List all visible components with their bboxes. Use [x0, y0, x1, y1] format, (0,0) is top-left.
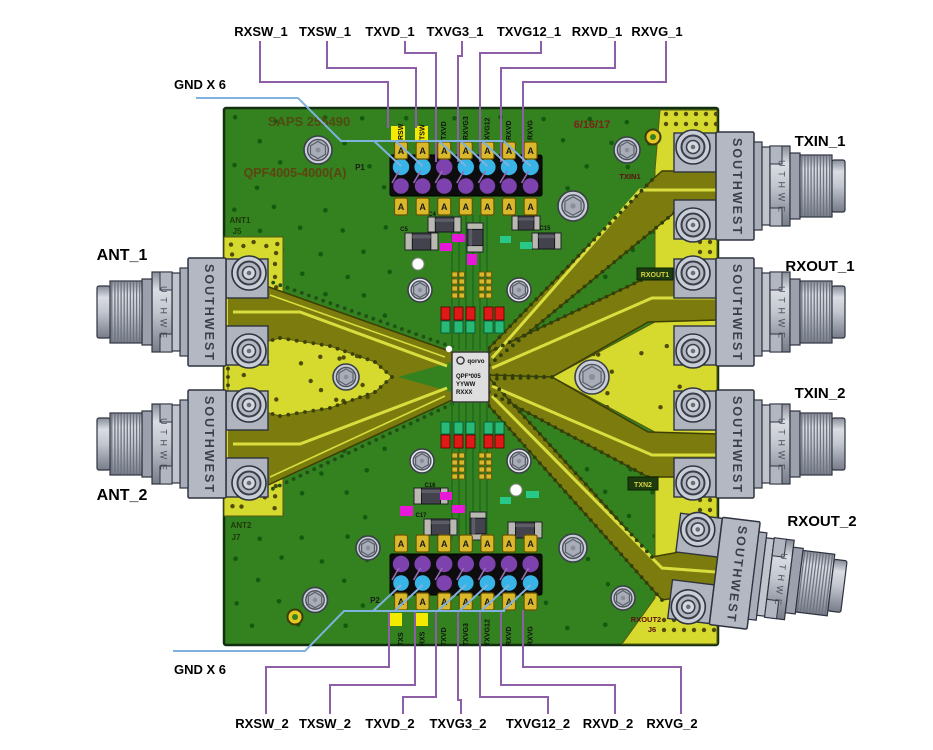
svg-text:RXVG_1: RXVG_1	[631, 24, 682, 39]
svg-text:YYWW: YYWW	[456, 382, 476, 388]
svg-text:RXVD_1: RXVD_1	[572, 24, 623, 39]
svg-text:TXVG12_1: TXVG12_1	[497, 24, 561, 39]
svg-text:ANT1: ANT1	[230, 216, 251, 225]
svg-text:TXVG3: TXVG3	[463, 623, 470, 646]
svg-text:RXS: RXS	[420, 631, 427, 646]
svg-text:A: A	[506, 539, 513, 549]
svg-text:TXVG3_2: TXVG3_2	[429, 716, 486, 731]
svg-text:RXOUT_1: RXOUT_1	[785, 258, 854, 275]
svg-text:QPF*005: QPF*005	[456, 374, 481, 380]
svg-text:SOUTHWEST: SOUTHWEST	[730, 138, 744, 234]
svg-text:A: A	[419, 146, 426, 156]
svg-text:GND X 6: GND X 6	[174, 77, 226, 92]
svg-text:J6: J6	[648, 625, 656, 634]
svg-text:SOUTHWEST: SOUTHWEST	[730, 264, 744, 360]
svg-text:TXVD: TXVD	[441, 121, 448, 140]
svg-text:A: A	[398, 539, 405, 549]
svg-text:ANT_2: ANT_2	[97, 487, 148, 504]
svg-text:RXXX: RXXX	[456, 390, 472, 396]
svg-text:C16: C16	[424, 483, 436, 489]
svg-text:TXVG3_1: TXVG3_1	[426, 24, 483, 39]
svg-text:A: A	[419, 202, 426, 212]
svg-text:A: A	[441, 202, 448, 212]
svg-text:TXVG12_2: TXVG12_2	[506, 716, 570, 731]
svg-text:RXVD: RXVD	[506, 121, 513, 140]
svg-text:A: A	[398, 202, 405, 212]
svg-text:TXVG12: TXVG12	[484, 619, 491, 646]
svg-text:A: A	[527, 146, 534, 156]
svg-text:A: A	[441, 539, 448, 549]
svg-text:A: A	[527, 202, 534, 212]
svg-text:P2: P2	[370, 596, 380, 605]
svg-text:C17: C17	[415, 513, 427, 519]
svg-text:A: A	[419, 597, 426, 607]
svg-text:SOUTHWEST: SOUTHWEST	[730, 396, 744, 492]
svg-text:6/16/17: 6/16/17	[574, 119, 611, 131]
svg-text:A: A	[527, 539, 534, 549]
svg-text:SOUTHWEST: SOUTHWEST	[202, 396, 216, 492]
svg-text:A: A	[419, 539, 426, 549]
svg-text:P1: P1	[355, 163, 365, 172]
svg-text:SAPS 255490: SAPS 255490	[268, 114, 350, 129]
svg-text:RXOUT2: RXOUT2	[631, 615, 661, 624]
svg-text:RXOUT1: RXOUT1	[641, 272, 670, 279]
svg-text:RXVG3: RXVG3	[463, 116, 470, 140]
svg-text:RXVG: RXVG	[528, 626, 535, 646]
svg-text:A: A	[484, 539, 491, 549]
svg-text:TXVD_1: TXVD_1	[365, 24, 414, 39]
svg-text:TSW: TSW	[420, 124, 427, 140]
svg-text:RXVD: RXVD	[506, 627, 513, 646]
svg-text:TXSW_2: TXSW_2	[299, 716, 351, 731]
svg-text:J7: J7	[232, 533, 241, 542]
svg-text:RXVG: RXVG	[528, 120, 535, 140]
svg-text:GND X 6: GND X 6	[174, 662, 226, 677]
svg-text:TXIN_1: TXIN_1	[795, 133, 846, 150]
svg-text:TXSW_1: TXSW_1	[299, 24, 351, 39]
svg-text:TXS: TXS	[398, 632, 405, 646]
svg-text:TXVD_2: TXVD_2	[365, 716, 414, 731]
svg-text:A: A	[527, 597, 534, 607]
svg-text:ANT2: ANT2	[231, 521, 252, 530]
svg-text:RXSW_2: RXSW_2	[235, 716, 288, 731]
svg-text:ANT_1: ANT_1	[97, 247, 148, 264]
svg-text:TXIN_2: TXIN_2	[795, 385, 846, 402]
svg-text:RXVG_2: RXVG_2	[646, 716, 697, 731]
svg-text:RXOUT_2: RXOUT_2	[787, 513, 856, 530]
svg-text:J5: J5	[233, 227, 242, 236]
svg-text:A: A	[506, 202, 513, 212]
svg-text:XVG12: XVG12	[484, 117, 491, 140]
svg-text:C15: C15	[539, 226, 551, 232]
svg-text:QPF4005-4000(A): QPF4005-4000(A)	[244, 166, 347, 180]
svg-text:RXVD_2: RXVD_2	[583, 716, 634, 731]
svg-text:TXIN1: TXIN1	[619, 172, 640, 181]
svg-text:A: A	[463, 539, 470, 549]
svg-text:TXVD: TXVD	[441, 627, 448, 646]
svg-text:A: A	[484, 202, 491, 212]
svg-text:RSW: RSW	[398, 123, 405, 140]
svg-text:RXSW_1: RXSW_1	[234, 24, 287, 39]
svg-text:SOUTHWEST: SOUTHWEST	[202, 264, 216, 360]
svg-text:qorvo: qorvo	[467, 358, 484, 365]
svg-text:C5: C5	[400, 227, 408, 233]
svg-text:A: A	[463, 202, 470, 212]
svg-text:TXN2: TXN2	[634, 482, 652, 489]
